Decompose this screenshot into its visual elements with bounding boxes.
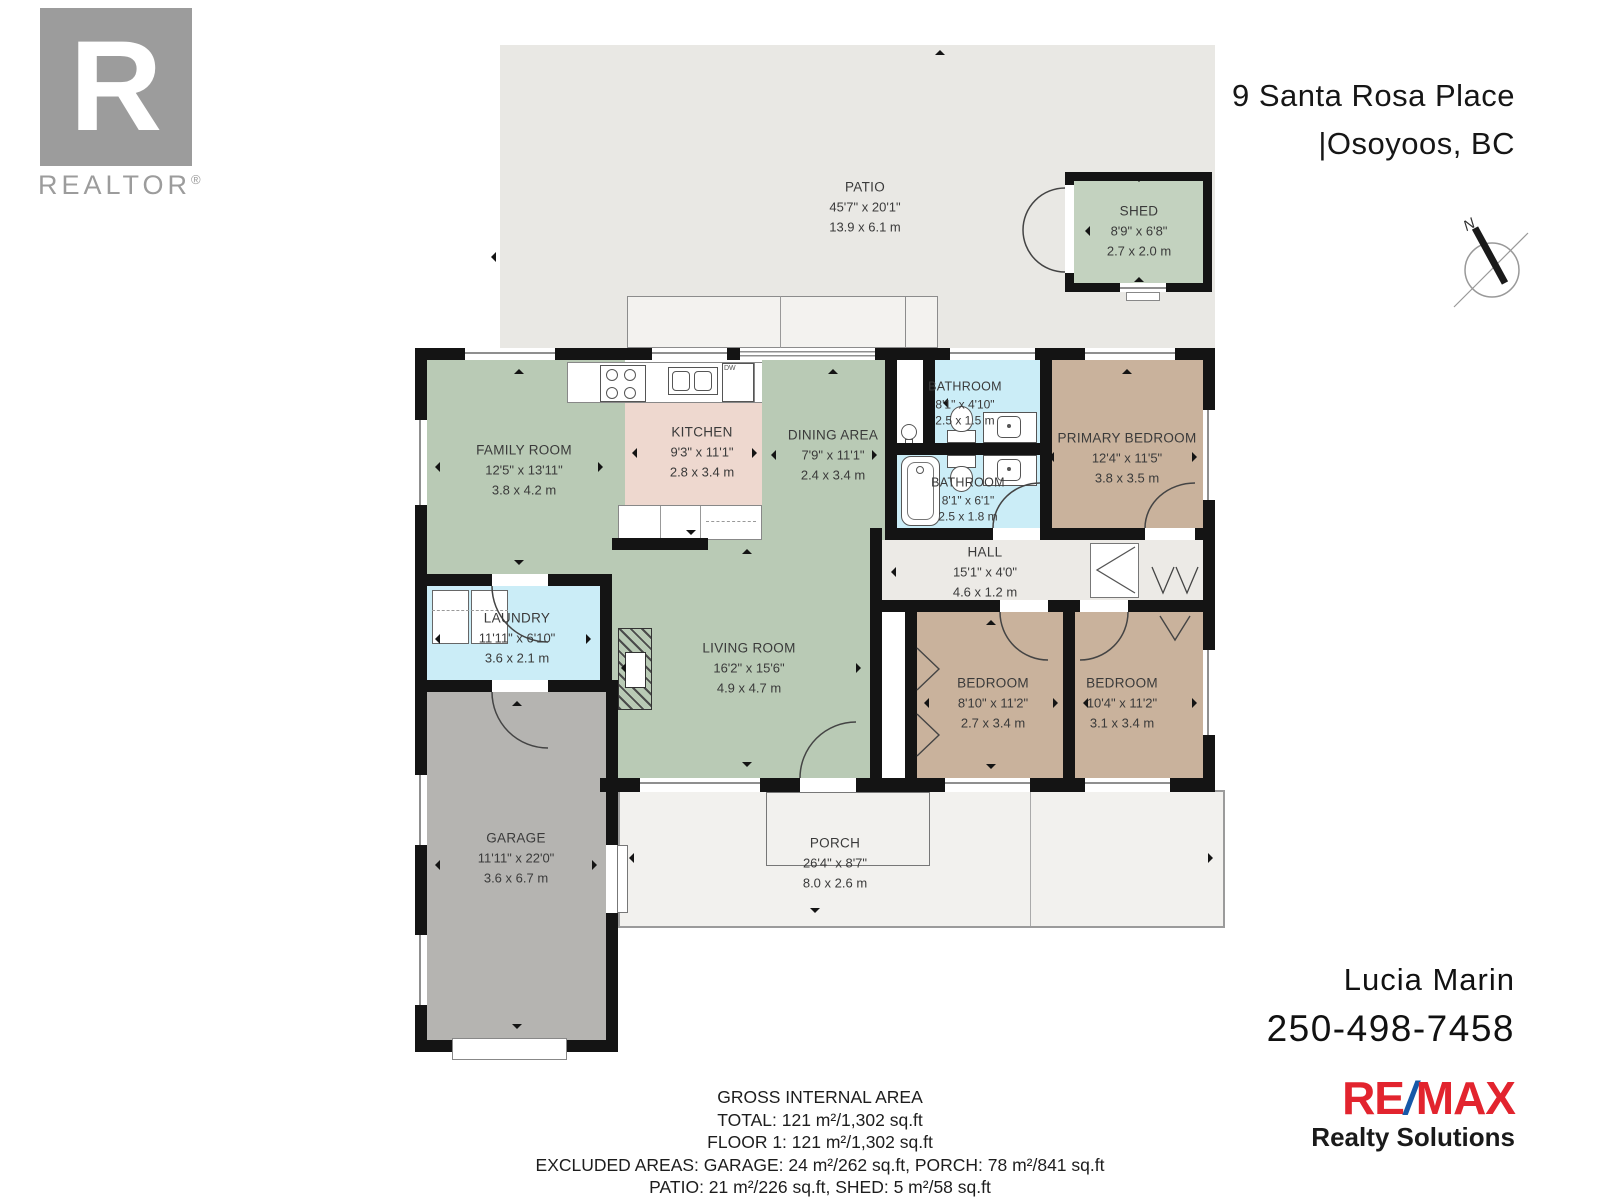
counter-divider: [754, 363, 755, 402]
summary-excluded1: EXCLUDED AREAS: GARAGE: 24 m²/262 sq.ft,…: [420, 1154, 1220, 1177]
stove-burner: [606, 387, 618, 399]
counter-divider: [660, 506, 661, 539]
bifold-closet-icon: [1150, 565, 1200, 597]
stove-burner: [606, 369, 618, 381]
dimension-tick: [856, 663, 866, 673]
dimension-tick: [1192, 698, 1202, 708]
door-opening: [492, 574, 548, 586]
agent-phone: 250-498-7458: [1267, 1008, 1515, 1050]
dimension-tick: [766, 450, 776, 460]
room-label-kitchen: KITCHEN 9'3" x 11'1" 2.8 x 3.4 m: [670, 422, 734, 481]
window: [1085, 348, 1175, 360]
wall: [897, 443, 1040, 455]
room-label-primary-bedroom: PRIMARY BEDROOM 12'4" x 11'5" 3.8 x 3.5 …: [1057, 428, 1196, 487]
closet-door-icon: [1090, 543, 1139, 598]
dimension-tick: [935, 45, 945, 55]
agent-name: Lucia Marin: [1267, 962, 1515, 998]
garage-door: [452, 1038, 567, 1060]
remax-sub-label: Realty Solutions: [1267, 1122, 1515, 1153]
dimension-tick: [592, 860, 602, 870]
dimension-tick: [886, 567, 896, 577]
dimension-tick: [514, 364, 524, 374]
vanity-faucet: [1007, 424, 1011, 428]
wall: [1048, 600, 1080, 612]
shed-door-arc: [1023, 230, 1065, 272]
dimension-tick: [742, 762, 752, 772]
dimension-tick: [586, 634, 596, 644]
window: [1085, 778, 1170, 792]
bathtub-drain: [916, 466, 924, 474]
vanity-faucet: [1007, 467, 1011, 471]
room-label-bathroom2: BATHROOM 8'1" x 6'1" 2.5 x 1.8 m: [931, 474, 1005, 525]
shed-window-sill: [1126, 292, 1160, 301]
sink-bowl: [694, 371, 712, 391]
room-label-laundry: LAUNDRY 11'11" x 6'10" 3.6 x 2.1 m: [479, 608, 556, 667]
counter-dashed-line: [706, 521, 756, 522]
wall: [1195, 528, 1215, 540]
dimension-tick: [616, 663, 626, 673]
dimension-tick: [430, 860, 440, 870]
realtor-logo-letter: R: [70, 15, 162, 158]
pedestal-sink-icon: [901, 424, 917, 440]
wall: [885, 360, 897, 540]
stove-burner: [624, 387, 636, 399]
dimension-tick: [742, 544, 752, 554]
dimension-tick: [1080, 226, 1090, 236]
dimension-tick: [828, 364, 838, 374]
dimension-tick: [1208, 853, 1218, 863]
realtor-logo: R: [40, 8, 192, 166]
window: [415, 420, 427, 505]
stove-burner: [624, 369, 636, 381]
room-label-patio: PATIO 45'7" x 20'1" 13.9 x 6.1 m: [829, 177, 901, 236]
wall: [600, 574, 612, 692]
counter-divider: [700, 506, 701, 539]
compass-icon: N: [1448, 215, 1533, 310]
window: [950, 348, 1035, 360]
dimension-tick: [752, 448, 762, 458]
room-label-hall: HALL 15'1" x 4'0" 4.6 x 1.2 m: [953, 542, 1017, 601]
dimension-tick: [514, 560, 524, 570]
window: [465, 348, 555, 360]
dimension-tick: [598, 462, 608, 472]
dimension-tick: [1134, 272, 1144, 282]
dimension-tick: [1053, 698, 1063, 708]
dimension-tick: [512, 696, 522, 706]
dimension-tick: [1044, 452, 1054, 462]
shed-window: [1120, 283, 1166, 292]
remax-slash-icon: /: [1404, 1072, 1416, 1124]
wall: [1063, 612, 1075, 778]
dimension-tick: [512, 1024, 522, 1034]
room-label-bedroom1: BEDROOM 8'10" x 11'2" 2.7 x 3.4 m: [957, 673, 1029, 732]
wall: [1040, 360, 1052, 540]
sink-bowl: [672, 371, 690, 391]
realtor-wordmark: REALTOR®: [38, 170, 205, 201]
remax-logo: RE/MAX: [1267, 1076, 1515, 1120]
porch-divider-line: [1030, 792, 1031, 926]
dimension-tick: [919, 698, 929, 708]
summary-excluded2: PATIO: 21 m²/226 sq.ft, SHED: 5 m²/58 sq…: [420, 1176, 1220, 1199]
dimension-tick: [430, 462, 440, 472]
summary-title: GROSS INTERNAL AREA: [420, 1086, 1220, 1109]
bifold-closet-icon: [1158, 614, 1192, 644]
closet-strip: [882, 612, 905, 778]
window: [415, 775, 427, 845]
room-label-porch: PORCH 26'4" x 8'7" 8.0 x 2.6 m: [803, 833, 867, 892]
wall: [870, 612, 882, 778]
room-label-family-room: FAMILY ROOM 12'5" x 13'11" 3.8 x 4.2 m: [476, 440, 572, 499]
shed-door-opening: [1065, 185, 1074, 273]
area-summary: GROSS INTERNAL AREA TOTAL: 121 m²/1,302 …: [420, 1086, 1220, 1200]
fireplace-firebox: [625, 652, 646, 688]
wall: [1040, 528, 1145, 540]
floor-plan-page: R REALTOR® 9 Santa Rosa Place |Osoyoos, …: [0, 0, 1600, 1200]
shed-door-arc: [1023, 188, 1065, 230]
bifold-closet-icon: [915, 646, 943, 692]
window: [415, 935, 427, 1005]
door-opening: [492, 680, 548, 692]
bifold-closet-icon: [915, 712, 943, 758]
wall: [870, 528, 882, 612]
summary-total: TOTAL: 121 m²/1,302 sq.ft: [420, 1109, 1220, 1132]
wall: [870, 600, 1000, 612]
dimension-tick: [686, 530, 696, 540]
registered-mark: ®: [191, 172, 205, 187]
dimension-tick: [1134, 177, 1144, 187]
dimension-tick: [986, 615, 996, 625]
dimension-tick: [810, 908, 820, 918]
patio-step: [627, 296, 907, 348]
wall: [885, 528, 993, 540]
agent-block: Lucia Marin 250-498-7458 RE/MAX Realty S…: [1267, 962, 1515, 1153]
front-door-opening: [800, 778, 856, 792]
patio-step-line: [780, 296, 781, 348]
window: [1203, 410, 1215, 500]
window: [1203, 650, 1215, 735]
room-label-garage: GARAGE 11'11" x 22'0" 3.6 x 6.7 m: [478, 828, 555, 887]
front-door-arc: [800, 722, 856, 778]
wall: [1128, 600, 1215, 612]
dimension-tick: [430, 634, 440, 644]
room-label-bedroom2: BEDROOM 10'4" x 11'2" 3.1 x 3.4 m: [1086, 673, 1158, 732]
door-arc: [1000, 612, 1048, 660]
dimension-tick: [1122, 364, 1132, 374]
dimension-tick: [486, 252, 496, 262]
dimension-tick: [624, 853, 634, 863]
dimension-tick: [986, 764, 996, 774]
summary-floor1: FLOOR 1: 121 m²/1,302 sq.ft: [420, 1131, 1220, 1154]
wall: [1203, 172, 1212, 292]
room-label-living-room: LIVING ROOM 16'2" x 15'6" 4.9 x 4.7 m: [702, 638, 795, 697]
room-label-bathroom1: BATHROOM 8'1" x 4'10" 2.5 x 1.5 m: [928, 378, 1002, 429]
patio-step-small: [905, 296, 938, 348]
window: [945, 778, 1030, 792]
room-label-dining-area: DINING AREA 7'9" x 11'1" 2.4 x 3.4 m: [788, 425, 878, 484]
dimension-tick: [627, 448, 637, 458]
window: [640, 778, 760, 792]
door-arc: [1145, 483, 1195, 528]
room-label-shed: SHED 8'9" x 6'8" 2.7 x 2.0 m: [1107, 201, 1171, 260]
door-arc: [1080, 612, 1128, 660]
dishwasher-label: DW: [724, 365, 736, 372]
sliding-door: [740, 348, 875, 360]
window: [652, 348, 727, 360]
